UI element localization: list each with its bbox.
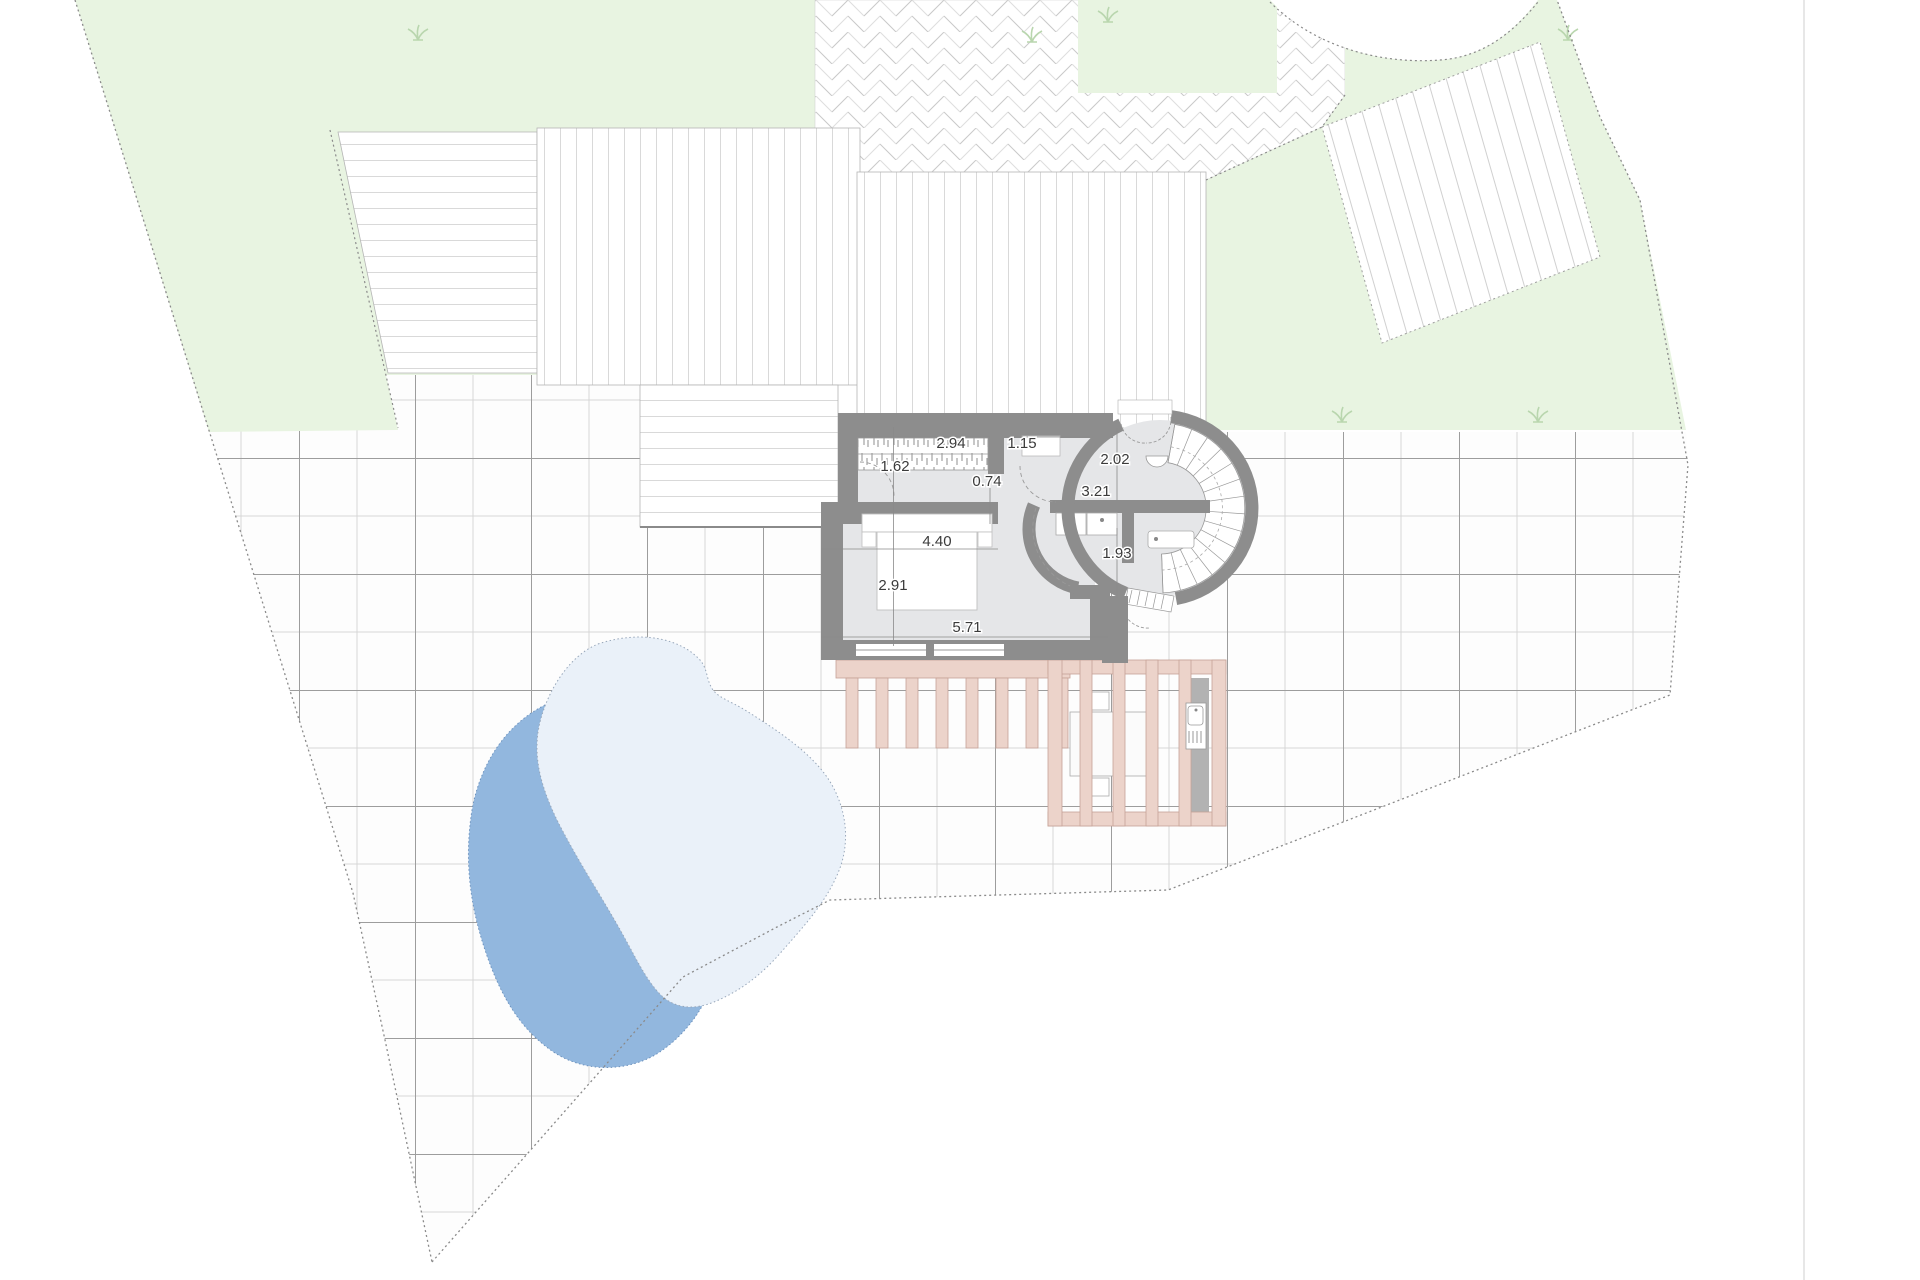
wall-tower-stub [1102, 596, 1128, 663]
site-plan-canvas: 2.94 1.15 2.02 1.62 0.74 3.21 4.40 1.93 … [0, 0, 1920, 1280]
bed-headboard [862, 514, 992, 532]
pergola-right-bottom-beam [1048, 812, 1226, 826]
nightstand [862, 532, 876, 547]
toilet-detail [1154, 537, 1158, 541]
pergola-slat [876, 678, 888, 748]
pergola-slat [996, 678, 1008, 748]
pergola-right-left-beam [1048, 660, 1062, 826]
dimension-label: 4.40 [922, 533, 951, 550]
dimension-label: 5.71 [952, 619, 981, 636]
pergola-left-top-beam [836, 660, 1070, 678]
roof-plane-vertical-center [537, 128, 860, 385]
pergola-slat [936, 678, 948, 748]
wall-bedroom-left [821, 502, 843, 658]
pergola-right-top-beam [1048, 660, 1226, 674]
pergola-slat [846, 678, 858, 748]
pergola-slat [966, 678, 978, 748]
dimension-label: 2.02 [1100, 451, 1129, 468]
pergola-right-right-beam [1212, 660, 1226, 826]
dimension-label: 1.15 [1007, 435, 1036, 452]
bathroom-sink [1087, 513, 1117, 535]
pergola-slat [906, 678, 918, 748]
roof-plane-horizontal-lower [640, 385, 838, 527]
wall-hall-divider [988, 428, 1004, 474]
dimension-label: 1.62 [880, 458, 909, 475]
dimension-label: 2.91 [878, 577, 907, 594]
pergola-slat [1113, 660, 1125, 826]
dimension-label: 0.74 [972, 473, 1001, 490]
entry-door-opening [1118, 400, 1172, 414]
wall-top [838, 413, 1113, 438]
dimension-label: 3.21 [1081, 483, 1110, 500]
pergola-slat [1146, 660, 1158, 826]
site-plan-page: 2.94 1.15 2.02 1.62 0.74 3.21 4.40 1.93 … [0, 0, 1920, 1280]
pergola-slat [1080, 660, 1092, 826]
sink-faucet [1100, 518, 1104, 522]
pergola-slat [1026, 678, 1038, 748]
sink-faucet [1195, 709, 1198, 712]
dimension-label: 1.93 [1102, 545, 1131, 562]
dimension-label: 2.94 [936, 435, 965, 452]
roof-plane-vertical-right [857, 172, 1206, 428]
nightstand [978, 532, 992, 547]
